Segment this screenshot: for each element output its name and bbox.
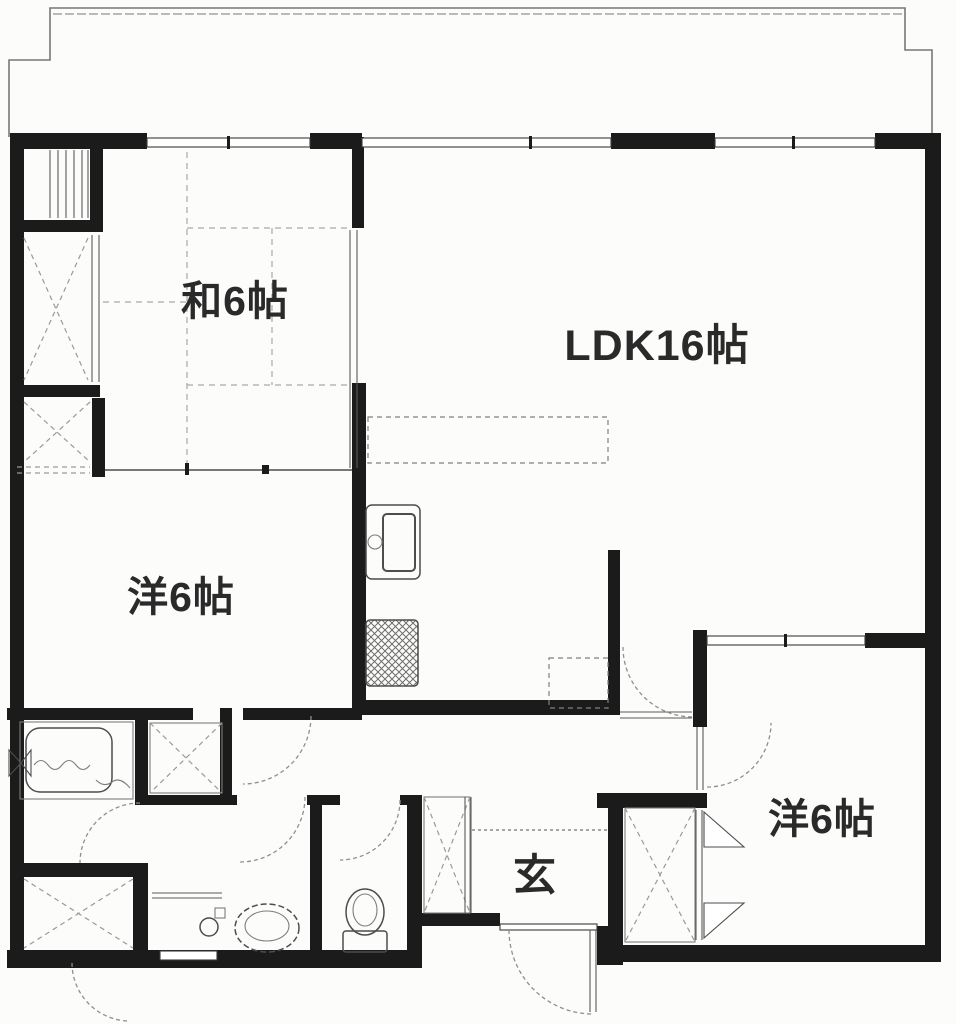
wall-segment [92, 398, 105, 477]
western-right-door-leaf [697, 727, 703, 790]
wall-segment [597, 926, 608, 965]
label-western-left: 洋6帖 [127, 574, 235, 620]
soap-tray [215, 908, 225, 918]
pipe-space-hatch [50, 150, 88, 218]
western-right-door-swing [707, 723, 771, 787]
toilet-tank [343, 931, 387, 952]
trunk-x-mark [24, 879, 133, 948]
bath-unit-lining [20, 722, 133, 799]
ldk-door-swing [623, 647, 693, 717]
wash-bowl [200, 918, 218, 936]
track-stop [262, 465, 269, 474]
wall-segment [310, 797, 322, 957]
sink-basin [383, 514, 415, 571]
wall-segment [10, 220, 103, 232]
genkan-area [424, 797, 608, 1014]
window-mullion [784, 634, 787, 647]
window-washroom-small [160, 951, 217, 960]
wall-segment [608, 796, 623, 965]
closet-door-swing-upper [704, 812, 744, 847]
wall-segment [693, 630, 707, 727]
window-mullion [227, 136, 230, 149]
floor-plan-page: 和6帖 LDK16帖 洋6帖 洋6帖 玄 [0, 0, 956, 1024]
window-mullion [792, 136, 795, 149]
futon-closet-upper [24, 235, 99, 382]
wall-segment [623, 945, 941, 962]
washroom-door-swing [240, 797, 305, 862]
toilet-bowl-inner [353, 894, 377, 926]
trunk-door-swing [72, 963, 130, 1021]
kitchen-sink [366, 505, 420, 579]
front-door-opening [500, 924, 597, 930]
toilet-room [343, 889, 387, 952]
wall-segment [135, 795, 237, 805]
front-door-swing [509, 930, 593, 1014]
shoe-storage [424, 797, 471, 913]
hall-closet [625, 808, 744, 942]
bath-water-line [34, 761, 130, 789]
front-door [509, 930, 596, 1014]
kitchen [366, 417, 692, 718]
bathroom [9, 722, 133, 799]
label-ldk: LDK16帖 [564, 322, 749, 370]
washer-x-mark [150, 723, 222, 793]
wall-segment [611, 133, 715, 149]
wall-segment [90, 148, 103, 232]
label-western-right: 洋6帖 [768, 796, 876, 842]
toilet-bowl [346, 889, 384, 935]
closet-x-mark [625, 808, 695, 942]
label-genkan: 玄 [513, 852, 557, 900]
trunk-room [24, 879, 133, 948]
wall-segment [7, 708, 193, 720]
vanity-counter-edge [152, 893, 222, 898]
front-door-leaf [590, 930, 596, 1012]
closet-door-line [696, 810, 702, 940]
sanitary-block [9, 722, 387, 952]
fusuma-door-line [92, 235, 99, 382]
sink-unit [366, 505, 420, 579]
western-left-door-swing [243, 716, 311, 784]
wall-segment [135, 720, 148, 803]
gas-stove [366, 620, 418, 686]
wall-segment [608, 550, 620, 713]
wall-segment [407, 795, 422, 965]
shelf-lines [50, 150, 88, 218]
washer-space [150, 723, 222, 793]
shoe-box-x-mark [424, 797, 470, 913]
wall-segment [352, 383, 366, 715]
hall-floor-line [620, 712, 692, 718]
bathroom-door-swing [80, 803, 140, 863]
wall-segment [133, 863, 148, 957]
closet-x-mark [24, 238, 88, 380]
wall-segment [925, 137, 941, 962]
wall-segment [10, 133, 147, 149]
wall-segment [865, 633, 925, 648]
wall-segment [10, 133, 24, 968]
window-ldk-left [362, 138, 611, 147]
closet-sliding-front [17, 467, 90, 473]
outer-walls [7, 133, 941, 968]
toilet-door-swing [340, 800, 400, 860]
floor-plan-svg: 和6帖 LDK16帖 洋6帖 洋6帖 玄 [0, 0, 956, 1024]
kitchen-counter [368, 417, 608, 463]
room-labels: 和6帖 LDK16帖 洋6帖 洋6帖 玄 [127, 278, 876, 900]
balcony-border [9, 8, 932, 137]
wall-segment [13, 863, 140, 877]
balcony-outline [9, 8, 932, 137]
closet-door-swing-lower [704, 903, 744, 938]
vanity-basin-inner [245, 911, 289, 941]
wall-segment [352, 137, 364, 228]
windows [147, 136, 875, 960]
faucet-icon [368, 535, 382, 549]
wall-segment [422, 913, 500, 926]
washroom [152, 893, 299, 952]
wall-segment [597, 793, 707, 808]
wall-segment [10, 385, 100, 397]
storage-closet-lower [17, 402, 90, 473]
wall-segment [243, 708, 362, 720]
track-stop [185, 463, 189, 475]
window-mullion [529, 136, 532, 149]
label-washitsu: 和6帖 [181, 278, 289, 324]
closet-x-mark [24, 402, 90, 462]
